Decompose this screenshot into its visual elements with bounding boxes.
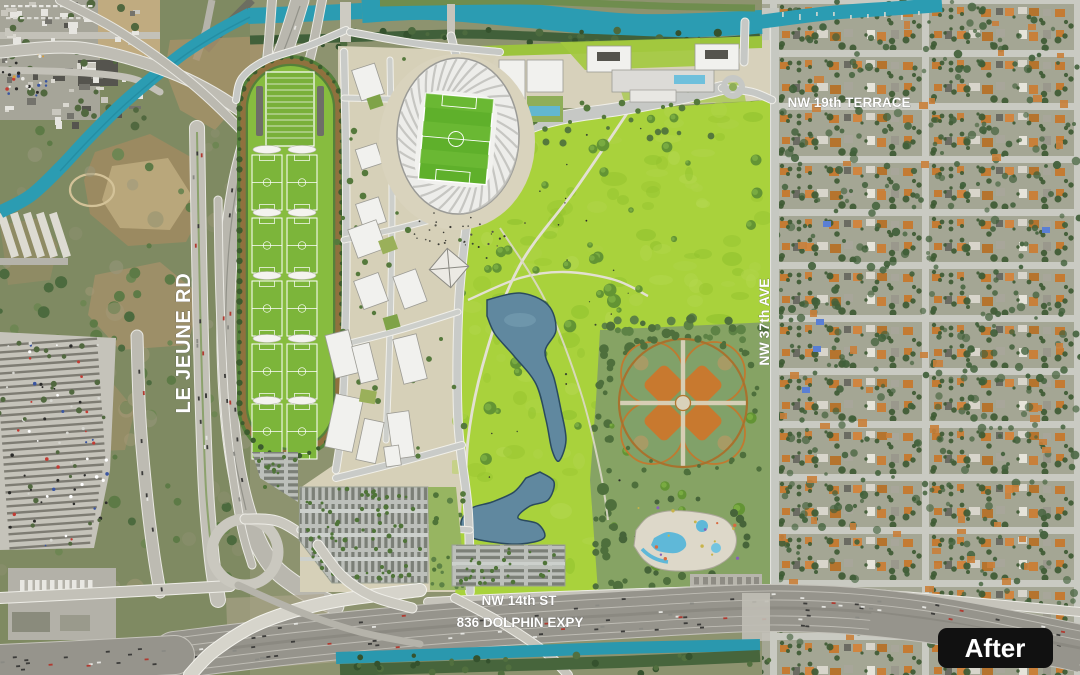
- svg-text:LE JEUNE RD: LE JEUNE RD: [173, 272, 195, 413]
- svg-text:NW 19th TERRACE: NW 19th TERRACE: [787, 95, 910, 110]
- svg-text:NW 37th AVE: NW 37th AVE: [756, 278, 772, 365]
- svg-text:After: After: [965, 633, 1026, 663]
- svg-text:NW 14th ST: NW 14th ST: [481, 593, 557, 608]
- svg-text:836 DOLPHIN EXPY: 836 DOLPHIN EXPY: [457, 615, 584, 630]
